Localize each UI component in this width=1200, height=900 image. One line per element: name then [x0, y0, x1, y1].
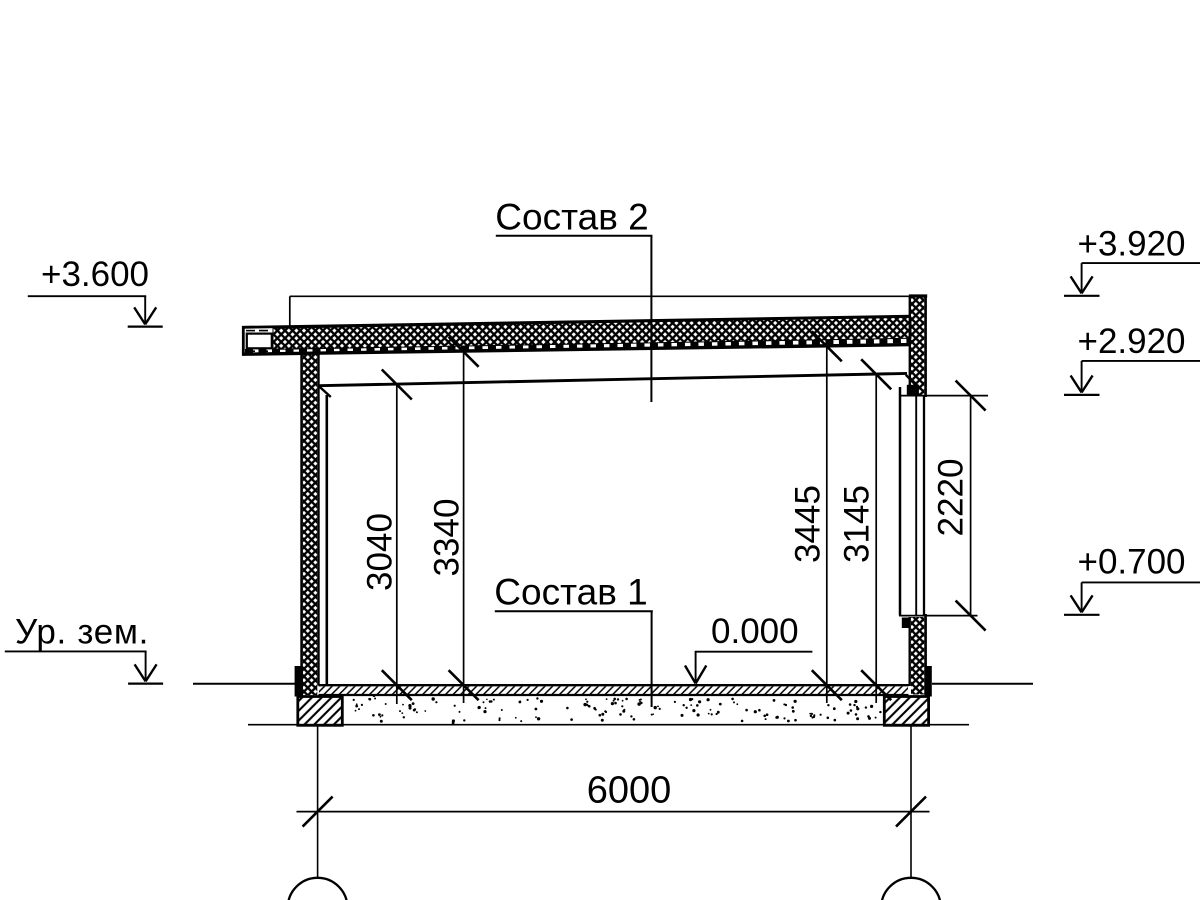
svg-text:3340: 3340	[428, 499, 467, 577]
svg-text:Состав 1: Состав 1	[494, 572, 647, 613]
svg-text:+3.600: +3.600	[41, 255, 149, 294]
svg-text:Состав 2: Состав 2	[495, 197, 648, 238]
svg-text:3145: 3145	[838, 485, 877, 563]
svg-text:3445: 3445	[789, 485, 828, 563]
svg-text:Ур. зем.: Ур. зем.	[15, 613, 149, 652]
svg-text:0.000: 0.000	[711, 612, 799, 651]
svg-text:+3.920: +3.920	[1078, 224, 1186, 263]
svg-text:2220: 2220	[932, 459, 971, 537]
svg-text:3040: 3040	[361, 513, 400, 591]
svg-text:+2.920: +2.920	[1078, 322, 1186, 361]
svg-text:6000: 6000	[587, 770, 672, 812]
svg-text:+0.700: +0.700	[1078, 542, 1186, 581]
